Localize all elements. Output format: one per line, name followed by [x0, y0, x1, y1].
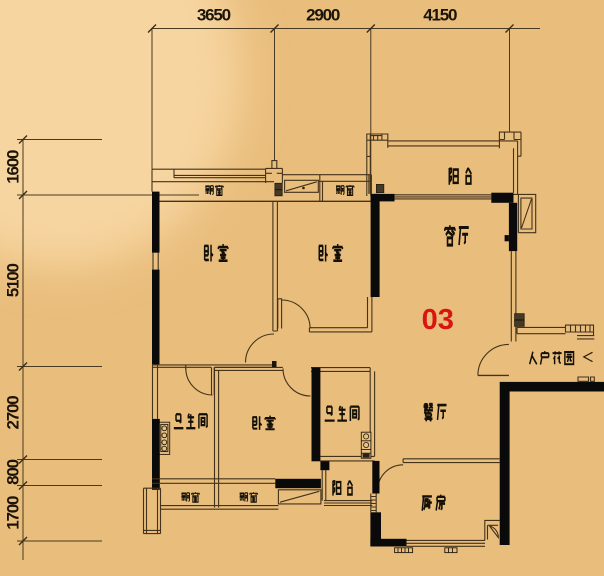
svg-text:4150: 4150	[423, 6, 457, 25]
svg-text:3650: 3650	[197, 6, 231, 25]
svg-text:5100: 5100	[4, 263, 23, 297]
svg-text:03: 03	[422, 304, 454, 336]
svg-text:1700: 1700	[4, 496, 23, 530]
svg-text:800: 800	[4, 459, 23, 485]
svg-text:2900: 2900	[306, 6, 340, 25]
svg-text:1600: 1600	[4, 150, 23, 184]
svg-text:2700: 2700	[4, 396, 23, 430]
